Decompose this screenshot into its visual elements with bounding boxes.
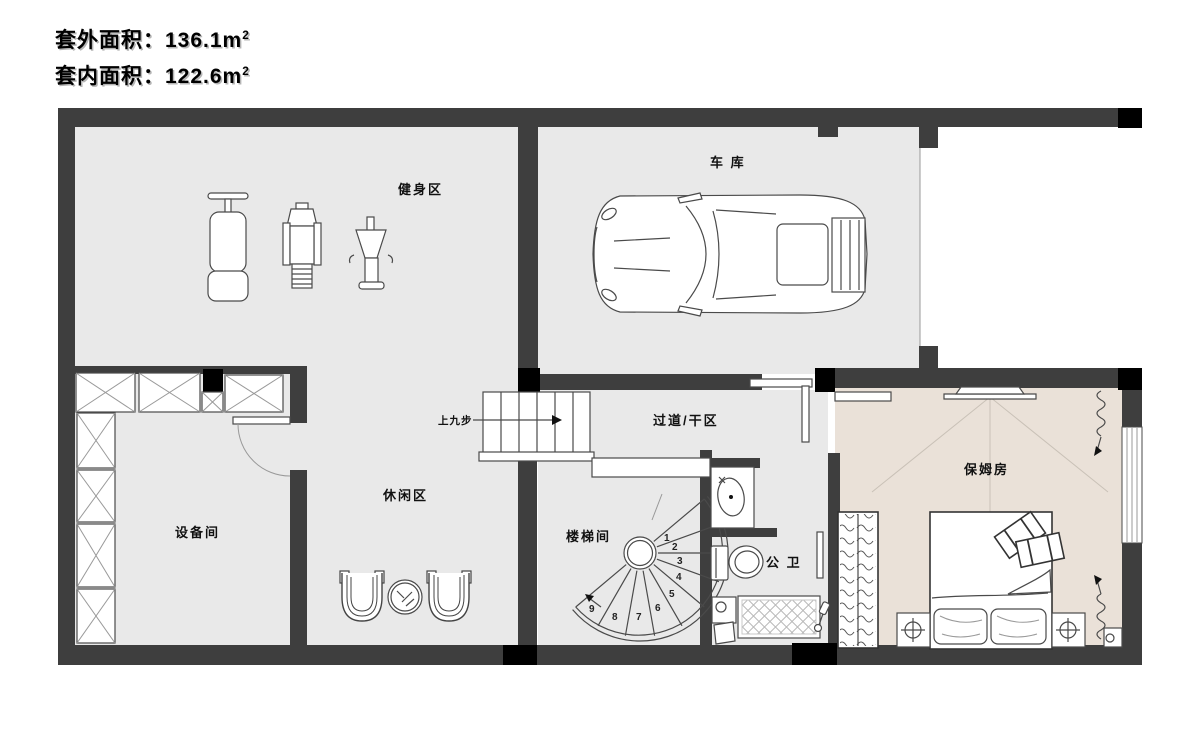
cabinet-box: [77, 524, 115, 587]
wall-top: [58, 108, 1142, 127]
car-rear-window: [777, 224, 828, 285]
step-number: 7: [636, 612, 642, 623]
column-g: [792, 643, 837, 665]
toilet: [711, 544, 765, 580]
wall-equipment-right-lower: [290, 470, 307, 647]
step-number: 9: [589, 604, 595, 615]
corridor-threshold: [592, 458, 710, 477]
sink-counter: [711, 467, 754, 528]
wall-nanny-right-upper: [1122, 388, 1142, 429]
door-leaf: [233, 417, 290, 424]
step-number: 8: [612, 612, 618, 623]
floor-drain-unit: [712, 597, 736, 623]
wall-left: [58, 108, 75, 665]
cabinet-box: [202, 392, 223, 412]
wall-nanny-top: [835, 368, 1142, 388]
nightstand-left: [897, 613, 930, 647]
wall-stairwell-left: [518, 458, 537, 647]
bathroom-door-leaf: [817, 532, 823, 578]
step-number: 1: [664, 533, 670, 544]
cabinet-box: [77, 589, 115, 643]
corridor-label: 过道/干区: [653, 413, 719, 428]
cabinet-box: [225, 375, 283, 412]
stair-landing: [479, 452, 594, 461]
corner-drain-box: [1104, 628, 1122, 647]
pillow-right: [991, 609, 1046, 644]
armchair-left: [340, 571, 384, 621]
shower-area: [712, 596, 830, 644]
wall-garage-bottom: [538, 374, 762, 390]
straight-stairs: [479, 392, 594, 461]
armchair-right: [427, 571, 471, 621]
side-table: [388, 580, 422, 614]
car: [593, 193, 867, 316]
stairwell-label: 楼梯间: [566, 529, 611, 544]
column-b: [203, 369, 223, 392]
garage-label: 车 库: [710, 155, 746, 170]
closet-shelf: [835, 392, 891, 401]
nanny-label: 保姆房: [963, 462, 1009, 477]
pillow-left: [934, 609, 987, 644]
wall-garage-divider: [518, 124, 538, 372]
nightstand-right: [1052, 613, 1085, 647]
wall-garage-door-stub-top: [919, 127, 938, 148]
wardrobe: [838, 512, 878, 648]
floorplan-drawing: 上九步 1 2 3 4 5 6 7 8 9: [0, 0, 1200, 752]
wall-nanny-right-lower: [1122, 543, 1142, 647]
window-nanny-right: [1122, 427, 1142, 543]
mop-basin: [714, 622, 735, 644]
car-rear-deck: [832, 218, 865, 292]
gym-label: 健身区: [398, 182, 443, 197]
column-d: [1118, 368, 1142, 390]
stair-note-label: 上九步: [438, 414, 473, 427]
step-number: 5: [669, 589, 675, 600]
column-f: [503, 645, 537, 665]
cabinet-box: [139, 373, 200, 412]
bathroom-label: 公 卫: [766, 555, 802, 570]
step-number: 2: [672, 542, 678, 553]
step-number: 6: [655, 603, 661, 614]
equipment-label: 设备间: [175, 525, 220, 540]
step-number: 3: [677, 556, 683, 567]
column-c: [815, 368, 835, 392]
bed: [930, 512, 1064, 649]
nanny-door-leaf: [802, 386, 809, 442]
step-number: 4: [676, 572, 682, 583]
column-e: [1118, 108, 1142, 128]
wall-garage-door-stub-bottom: [919, 346, 938, 372]
wall-top-stub: [818, 127, 838, 137]
cabinet-box: [77, 470, 115, 522]
leisure-label: 休闲区: [382, 488, 428, 503]
wall-bathroom-left: [700, 450, 712, 647]
cabinet-box: [76, 373, 135, 412]
column-a: [518, 368, 540, 392]
floorplan-canvas: 套外面积：136.1m2 套内面积：122.6m2: [0, 0, 1200, 752]
cabinet-box: [77, 413, 115, 468]
wall-equipment-right-upper: [290, 373, 307, 423]
